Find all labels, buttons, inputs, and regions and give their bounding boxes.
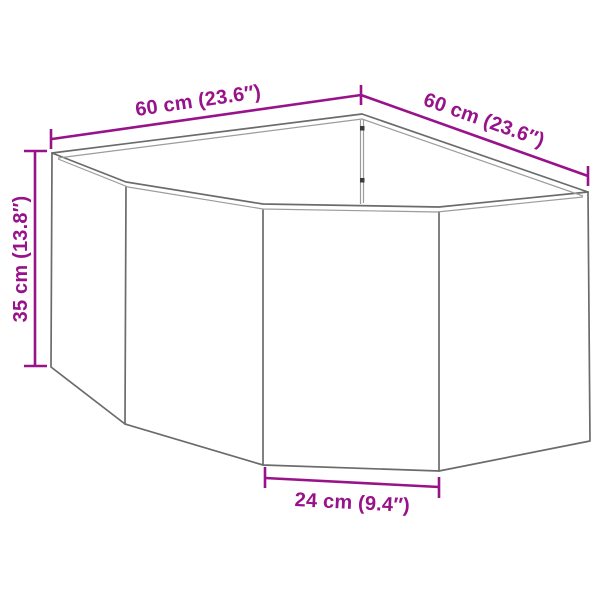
dim-line-bottom-front [265, 478, 439, 487]
planter-outline [51, 114, 590, 471]
dimension-label-front-bottom: 24 cm (9.4″) [294, 489, 410, 517]
planter-back-corner-seam [361, 120, 364, 204]
rivet-dot-upper [360, 126, 365, 131]
product-dimension-diagram: 60 cm (23.6″) 60 cm (23.6″) 35 cm (13.8″… [0, 0, 600, 600]
dimension-label-top-left-width: 60 cm (23.6″) [134, 81, 263, 121]
planter-rim-front-edges [52, 153, 588, 207]
planter-rim-inner-front [58, 159, 583, 212]
dimension-labels: 60 cm (23.6″) 60 cm (23.6″) 35 cm (13.8″… [10, 81, 547, 517]
dimension-annotations [24, 85, 588, 498]
rivet-dot-lower [360, 178, 365, 183]
corner-planter-line-drawing: 60 cm (23.6″) 60 cm (23.6″) 35 cm (13.8″… [0, 0, 600, 600]
planter-panel-edge-left [125, 187, 126, 424]
dimension-label-top-right-width: 60 cm (23.6″) [421, 89, 548, 152]
dimension-label-left-height: 35 cm (13.8″) [10, 196, 32, 323]
